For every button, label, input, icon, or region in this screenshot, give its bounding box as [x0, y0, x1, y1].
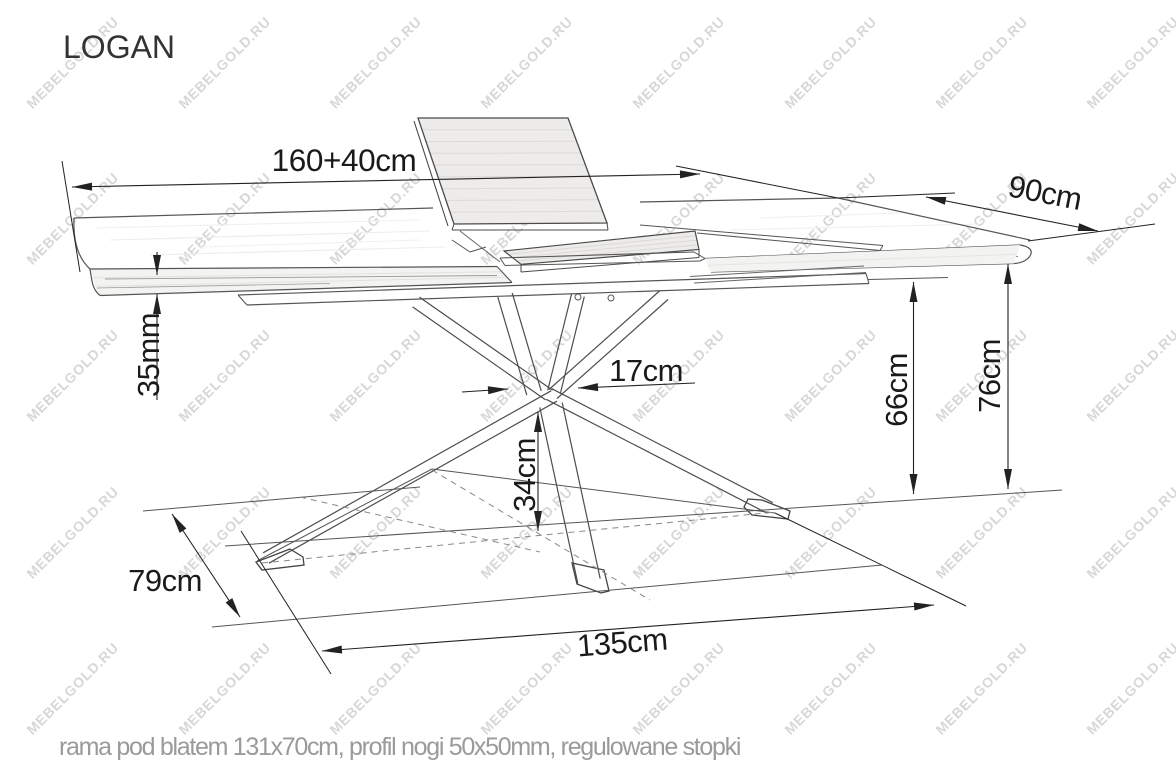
svg-text:MEBELGOLD.RU: MEBELGOLD.RU	[477, 639, 575, 737]
svg-text:135cm: 135cm	[576, 622, 669, 664]
svg-text:MEBELGOLD.RU: MEBELGOLD.RU	[326, 326, 424, 424]
svg-text:MEBELGOLD.RU: MEBELGOLD.RU	[326, 13, 424, 111]
svg-text:160+40cm: 160+40cm	[272, 142, 417, 178]
svg-text:MEBELGOLD.RU: MEBELGOLD.RU	[781, 639, 879, 737]
svg-text:MEBELGOLD.RU: MEBELGOLD.RU	[1083, 639, 1176, 737]
svg-text:MEBELGOLD.RU: MEBELGOLD.RU	[23, 169, 121, 267]
svg-text:MEBELGOLD.RU: MEBELGOLD.RU	[932, 13, 1030, 111]
svg-text:17cm: 17cm	[609, 353, 683, 388]
svg-text:MEBELGOLD.RU: MEBELGOLD.RU	[781, 13, 879, 111]
svg-text:34cm: 34cm	[507, 438, 542, 512]
svg-text:MEBELGOLD.RU: MEBELGOLD.RU	[175, 639, 273, 737]
svg-text:MEBELGOLD.RU: MEBELGOLD.RU	[326, 169, 424, 267]
svg-text:MEBELGOLD.RU: MEBELGOLD.RU	[175, 13, 273, 111]
svg-text:66cm: 66cm	[879, 353, 914, 427]
svg-text:MEBELGOLD.RU: MEBELGOLD.RU	[477, 13, 575, 111]
svg-text:MEBELGOLD.RU: MEBELGOLD.RU	[1083, 13, 1176, 111]
svg-text:LOGAN: LOGAN	[63, 29, 175, 65]
svg-text:MEBELGOLD.RU: MEBELGOLD.RU	[326, 639, 424, 737]
svg-text:79cm: 79cm	[128, 563, 202, 598]
svg-text:MEBELGOLD.RU: MEBELGOLD.RU	[1083, 169, 1176, 267]
svg-text:MEBELGOLD.RU: MEBELGOLD.RU	[1083, 483, 1176, 581]
svg-text:35mm: 35mm	[131, 313, 166, 397]
svg-text:MEBELGOLD.RU: MEBELGOLD.RU	[175, 326, 273, 424]
svg-text:MEBELGOLD.RU: MEBELGOLD.RU	[932, 639, 1030, 737]
svg-text:MEBELGOLD.RU: MEBELGOLD.RU	[629, 13, 727, 111]
svg-text:MEBELGOLD.RU: MEBELGOLD.RU	[326, 483, 424, 581]
svg-text:MEBELGOLD.RU: MEBELGOLD.RU	[781, 326, 879, 424]
svg-text:MEBELGOLD.RU: MEBELGOLD.RU	[23, 326, 121, 424]
svg-text:90cm: 90cm	[1005, 168, 1084, 216]
svg-text:MEBELGOLD.RU: MEBELGOLD.RU	[23, 483, 121, 581]
svg-text:76cm: 76cm	[972, 339, 1007, 413]
svg-text:MEBELGOLD.RU: MEBELGOLD.RU	[629, 483, 727, 581]
svg-text:MEBELGOLD.RU: MEBELGOLD.RU	[23, 639, 121, 737]
svg-text:rama pod blatem 131x70cm, prof: rama pod blatem 131x70cm, profil nogi 50…	[59, 733, 740, 761]
svg-text:MEBELGOLD.RU: MEBELGOLD.RU	[1083, 326, 1176, 424]
